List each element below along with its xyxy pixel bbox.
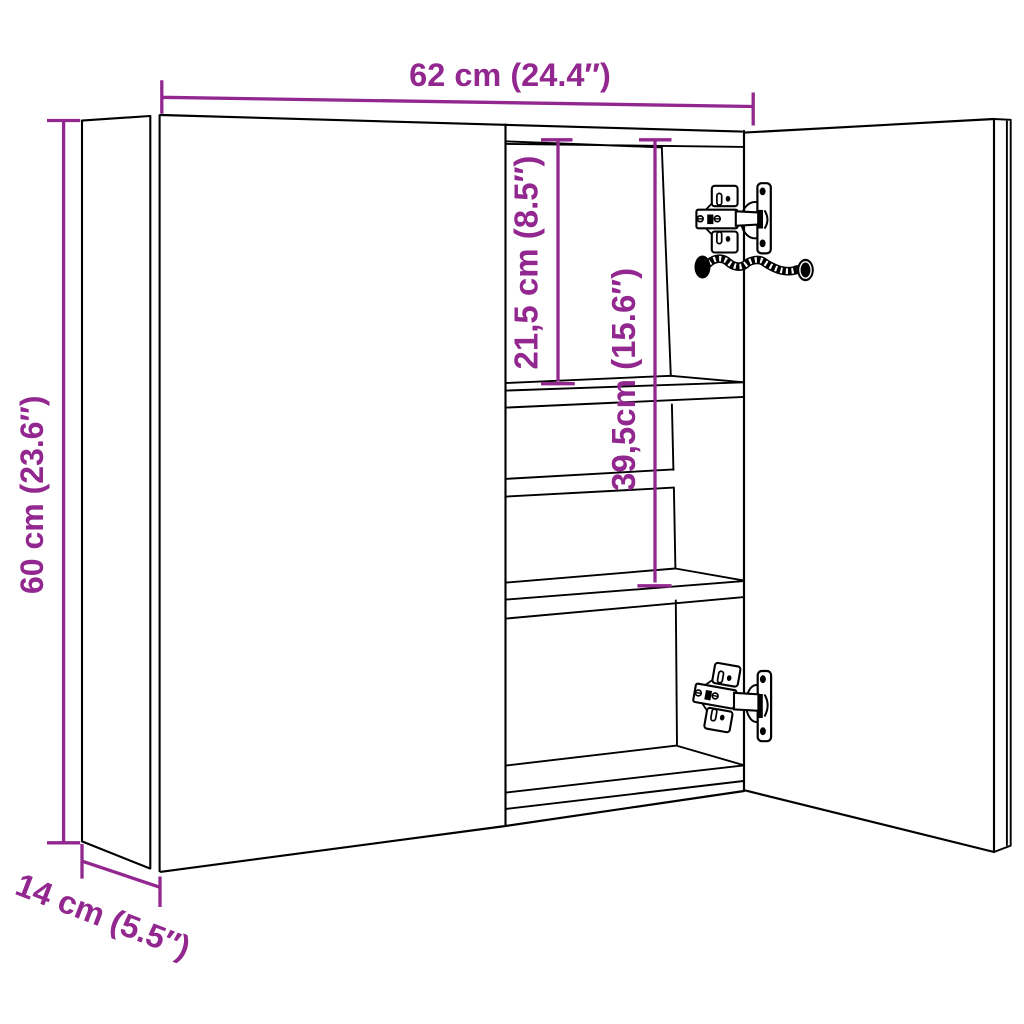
svg-text:60 cm (23.6″): 60 cm (23.6″) (14, 395, 50, 594)
svg-text:21,5 cm (8.5″): 21,5 cm (8.5″) (507, 156, 544, 370)
svg-text:62 cm (24.4″): 62 cm (24.4″) (409, 57, 611, 93)
svg-text:39,5cm (15.6″): 39,5cm (15.6″) (605, 268, 642, 491)
